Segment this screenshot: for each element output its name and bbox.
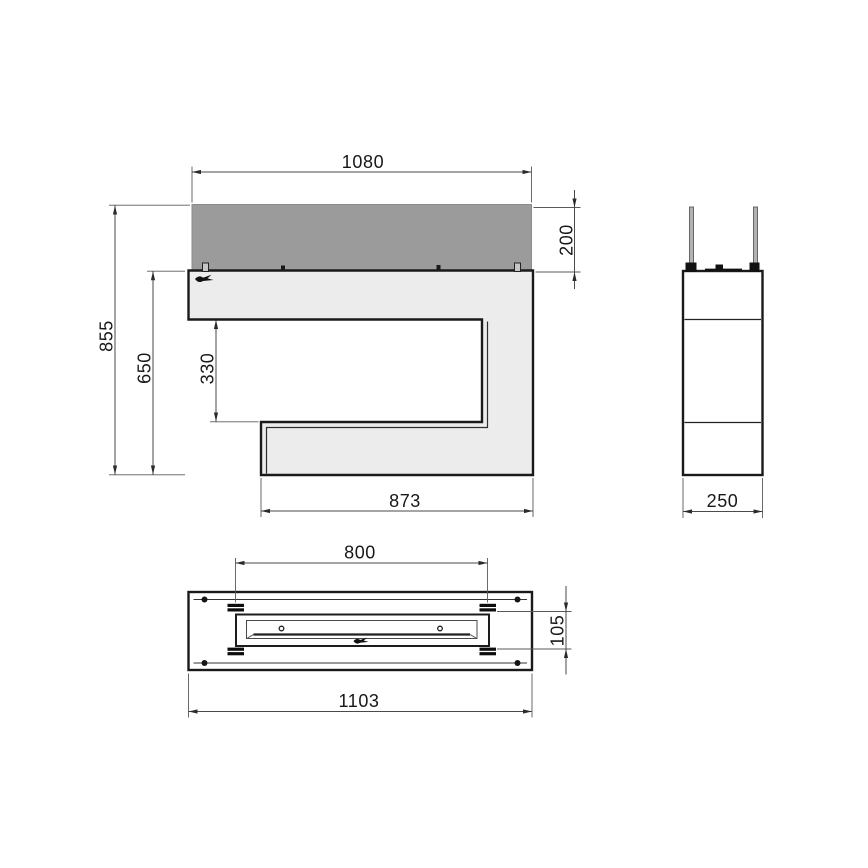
- drawing-canvas: 1080 200 855 650 330 873: [0, 0, 868, 868]
- arrowhead: [261, 509, 270, 513]
- dim-glass-height: 200: [534, 190, 581, 289]
- tray-screw-right: [438, 626, 443, 631]
- dim-label-base-width: 873: [389, 491, 421, 511]
- arrowhead: [683, 509, 692, 513]
- bottom-view: [189, 592, 533, 670]
- side-view: [683, 207, 763, 475]
- tray-screw-left: [279, 626, 284, 631]
- mounting-hook-left: [203, 263, 209, 272]
- arrowhead: [214, 320, 218, 329]
- dim-label-burner-depth: 105: [548, 615, 568, 647]
- dim-glass-width: 1080: [192, 152, 532, 203]
- arrowhead: [113, 206, 117, 215]
- arrowhead: [523, 170, 532, 174]
- screw-dot: [202, 660, 208, 666]
- dim-depth: 250: [683, 478, 763, 518]
- dim-label-overall-width: 1103: [338, 691, 379, 711]
- dim-overall-height: 855: [97, 205, 191, 475]
- screw-dot: [515, 660, 521, 666]
- arrowhead: [113, 466, 117, 475]
- arrowhead: [572, 199, 576, 208]
- screw-dot: [202, 597, 208, 603]
- arrowhead: [214, 413, 218, 422]
- arrowhead: [151, 466, 155, 475]
- arrowhead: [151, 271, 155, 280]
- arrowhead: [524, 509, 533, 513]
- arrowhead: [479, 561, 488, 565]
- side-body: [683, 271, 763, 475]
- screw-dot: [515, 597, 521, 603]
- dim-label-glass-height: 200: [557, 224, 577, 256]
- arrowhead: [564, 649, 568, 658]
- dim-label-body-height: 650: [135, 352, 155, 384]
- dim-opening-height: 330: [198, 320, 259, 422]
- dim-overall-width: 1103: [189, 674, 533, 718]
- dim-label-mount-spacing: 800: [344, 543, 376, 563]
- dim-label-depth: 250: [707, 491, 739, 511]
- arrowhead: [236, 561, 245, 565]
- dim-base-width: 873: [261, 478, 533, 517]
- mounting-tick-right: [437, 265, 441, 270]
- arrowhead: [572, 272, 576, 281]
- glass-clip-front: [686, 263, 697, 273]
- side-glass-pane-front: [690, 207, 694, 267]
- technical-drawing-page: 1080 200 855 650 330 873: [0, 0, 868, 868]
- arrowhead: [754, 509, 763, 513]
- arrowhead: [523, 709, 532, 713]
- glass-clip-rear: [750, 263, 760, 273]
- dim-body-height: 650: [135, 271, 186, 474]
- front-body: [189, 271, 534, 476]
- front-glass-panel: [192, 205, 532, 271]
- dim-label-glass-width: 1080: [342, 152, 384, 172]
- arrowhead: [192, 170, 201, 174]
- arrowhead: [189, 709, 198, 713]
- mounting-hook-right: [515, 263, 521, 272]
- front-view: [189, 205, 534, 476]
- dim-label-overall-height: 855: [97, 320, 117, 352]
- dim-label-opening-height: 330: [198, 353, 218, 385]
- side-glass-pane-rear: [754, 207, 758, 267]
- arrowhead: [564, 603, 568, 612]
